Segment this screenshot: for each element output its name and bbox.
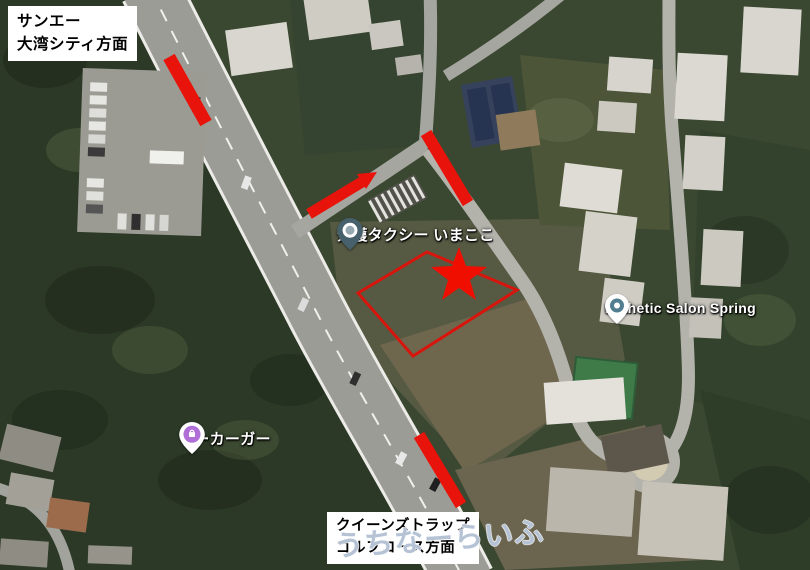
- annotation-layer: [0, 0, 810, 570]
- route-marker-south: [419, 435, 461, 505]
- direction-label-north-line1: サンエー: [17, 10, 128, 33]
- direction-label-south: クイーンズトラップ ゴルフコース方面: [327, 512, 479, 564]
- direction-label-south-line1: クイーンズトラップ: [336, 516, 470, 538]
- poi-care-taxi[interactable]: 介護タクシー いまここ: [337, 218, 494, 245]
- poi-esthetic-salon[interactable]: Esthetic Salon Spring: [605, 294, 756, 316]
- shopping-pin-icon: [179, 422, 205, 454]
- direction-label-north: サンエー 大湾シティ方面: [8, 6, 137, 61]
- direction-label-south-line2: ゴルフコース方面: [336, 538, 470, 560]
- route-marker-east: [426, 133, 468, 203]
- map-pin-icon: [605, 294, 629, 324]
- route-marker-approach: [309, 182, 362, 214]
- map-pin-icon: [337, 218, 363, 250]
- satellite-map[interactable]: 介護タクシー いまここ Esthetic Salon Spring マーカーガー…: [0, 0, 810, 570]
- direction-label-north-line2: 大湾シティ方面: [17, 33, 128, 56]
- poi-marker-shop[interactable]: マーカーガー: [179, 422, 271, 449]
- route-marker-north: [169, 57, 206, 123]
